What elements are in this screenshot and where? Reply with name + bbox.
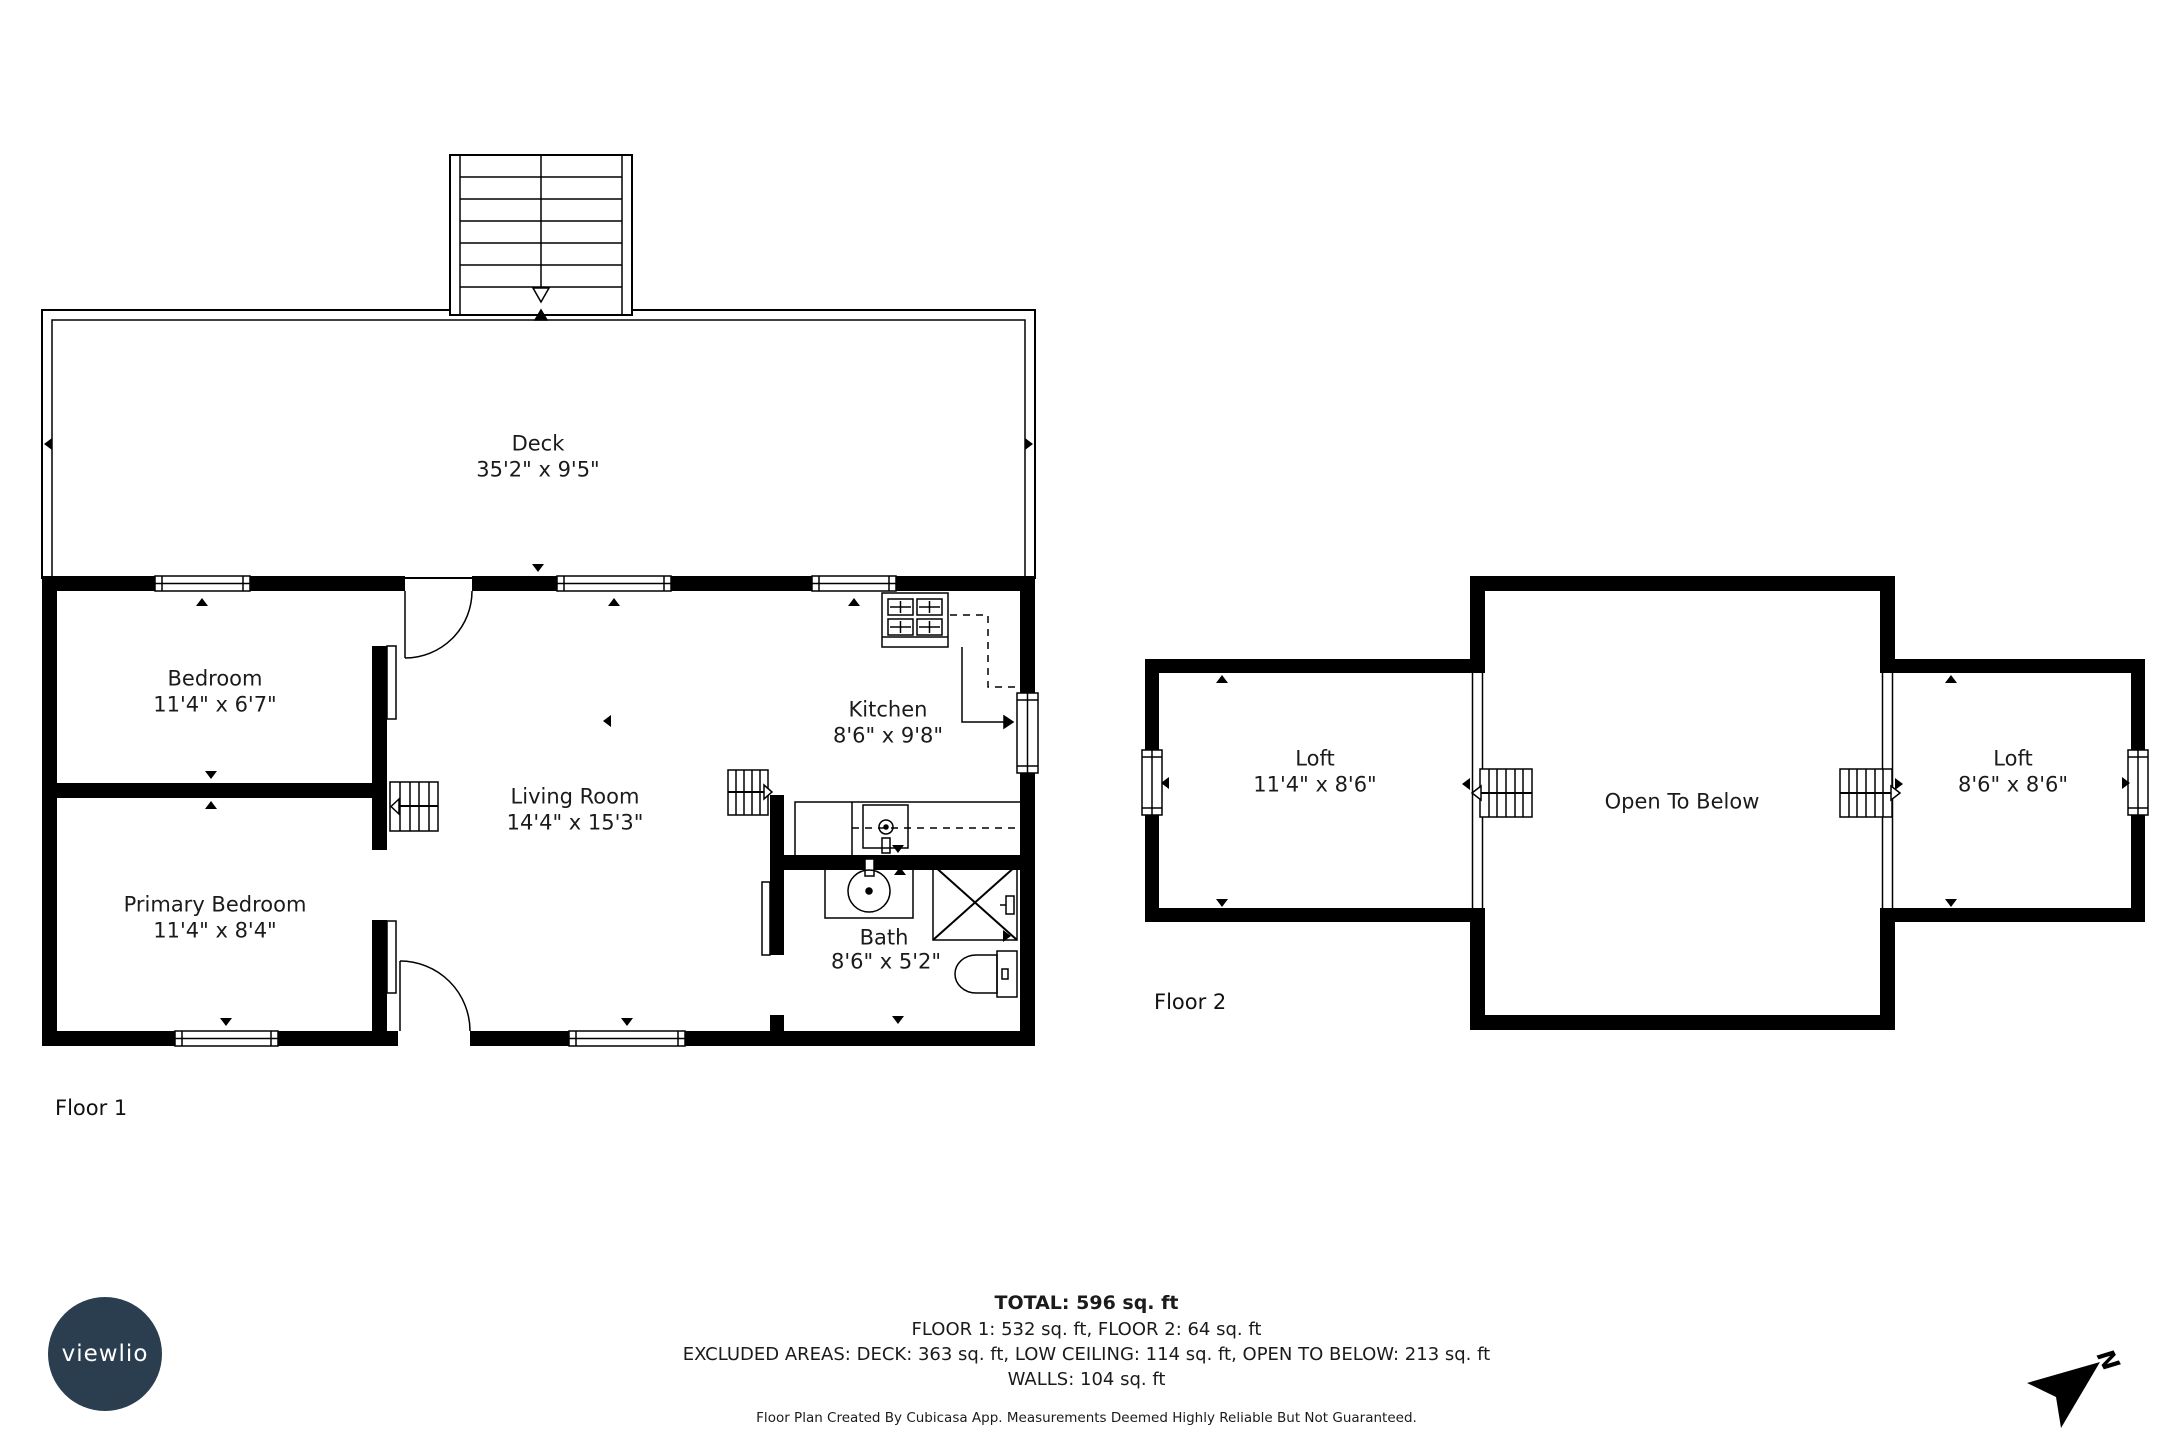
floor-plan-page: N Deck 35'2" x 9'5" Bedroom 11'4" x 6'7"…: [0, 0, 2173, 1448]
window: [155, 576, 250, 591]
window: [1142, 750, 1162, 815]
door-leaf: [387, 646, 396, 719]
room-label-bedroom: Bedroom: [168, 666, 263, 691]
room-label-living-room: Living Room: [511, 784, 640, 809]
stair-icon-kitchen-right: [728, 770, 772, 815]
window: [175, 1031, 278, 1046]
summary-walls: WALLS: 104 sq. ft: [0, 1369, 2173, 1390]
summary-disclaimer: Floor Plan Created By Cubicasa App. Meas…: [0, 1410, 2173, 1426]
room-dims-primary-bedroom: 11'4" x 8'4": [153, 918, 276, 943]
room-label-loft-right: Loft: [1993, 746, 2032, 771]
room-label-loft-left: Loft: [1295, 746, 1334, 771]
room-label-bath: Bath: [860, 925, 909, 950]
deck-stairs-icon: [450, 155, 632, 320]
floor2-label: Floor 2: [1154, 990, 1226, 1014]
room-dims-deck: 35'2" x 9'5": [476, 457, 599, 482]
viewlio-logo-text: viewlio: [62, 1341, 149, 1367]
room-dims-bedroom: 11'4" x 6'7": [153, 692, 276, 717]
door-leaf: [387, 921, 396, 993]
window: [2128, 750, 2148, 815]
room-dims-bath: 8'6" x 5'2": [831, 949, 941, 974]
floor1-label: Floor 1: [55, 1096, 127, 1120]
summary-excluded: EXCLUDED AREAS: DECK: 363 sq. ft, LOW CE…: [0, 1344, 2173, 1365]
room-dims-living-room: 14'4" x 15'3": [507, 810, 644, 835]
door-leaf: [762, 882, 770, 955]
stair-icon-living-left: [390, 782, 438, 831]
stair-icon-floor2-left: [1472, 769, 1532, 817]
room-label-kitchen: Kitchen: [849, 697, 928, 722]
room-label-open-to-below: Open To Below: [1605, 789, 1760, 814]
summary-floors: FLOOR 1: 532 sq. ft, FLOOR 2: 64 sq. ft: [0, 1319, 2173, 1340]
viewlio-logo: viewlio: [48, 1297, 162, 1411]
room-dims-loft-right: 8'6" x 8'6": [1958, 772, 2068, 797]
door-arc: [400, 961, 470, 1031]
window: [812, 576, 896, 591]
window: [569, 1031, 685, 1046]
room-label-primary-bedroom: Primary Bedroom: [124, 892, 307, 917]
shower-icon: [933, 865, 1017, 940]
room-label-deck: Deck: [512, 431, 565, 456]
window: [557, 576, 671, 591]
toilet-icon: [955, 951, 1017, 997]
stove-icon: [882, 593, 948, 647]
floor-plan-drawing: N: [0, 0, 2173, 1448]
stair-icon-floor2-right: [1840, 769, 1900, 817]
door-arc: [405, 591, 472, 658]
room-dims-loft-left: 11'4" x 8'6": [1253, 772, 1376, 797]
summary-total: TOTAL: 596 sq. ft: [0, 1292, 2173, 1314]
room-dims-kitchen: 8'6" x 9'8": [833, 723, 943, 748]
area-summary: TOTAL: 596 sq. ft FLOOR 1: 532 sq. ft, F…: [0, 1292, 2173, 1426]
window: [1017, 693, 1038, 773]
